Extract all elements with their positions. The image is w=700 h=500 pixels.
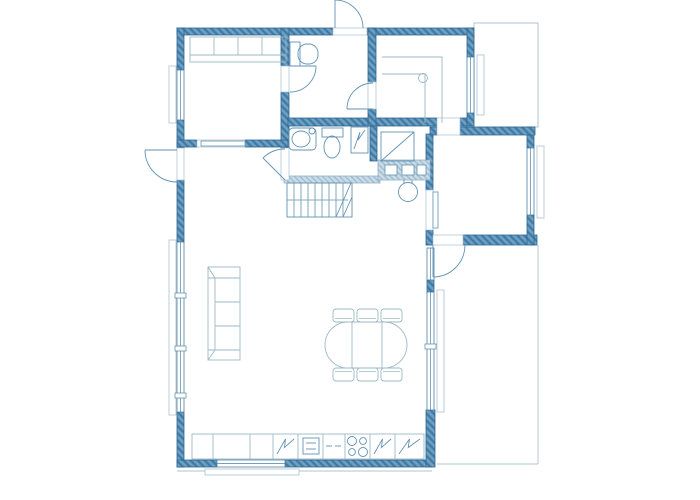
chair-4 (333, 368, 354, 381)
washbasin-faucet (309, 128, 315, 134)
mullion-dining (425, 344, 436, 349)
wall-west-4 (177, 412, 184, 467)
wall-hall-east-2 (467, 113, 474, 126)
sill-dining-window (437, 290, 444, 412)
sliding-door-bedroom (201, 141, 245, 146)
doorway-hall-eastroom (437, 118, 460, 135)
floor-plan-drawing (0, 0, 700, 500)
wall-south-east (285, 460, 432, 467)
washbasin-bowl (292, 131, 310, 147)
wall-hall-south-west (368, 118, 437, 126)
mullion-living-3 (175, 393, 186, 398)
wall-eastroom-north-east (460, 127, 535, 135)
chimney-flue-3 (417, 165, 426, 175)
dining-table (325, 322, 407, 368)
plan-root (145, 0, 544, 475)
appliance-freezer (399, 439, 420, 454)
opening-west-door (177, 148, 184, 180)
door-arc-entry (335, 0, 363, 28)
window-dining-east-2 (427, 292, 434, 410)
sofa-corner-2 (208, 350, 215, 360)
appliance-dishwasher (277, 439, 294, 454)
opening-bath-door (281, 148, 289, 180)
hall-counter-sink (419, 74, 428, 83)
toilet-bowl-bath (324, 136, 340, 158)
sill-east-room-window (537, 146, 544, 218)
chair-2 (357, 309, 378, 322)
window-kitchen-south (217, 460, 285, 467)
toilet-tank-entry (290, 42, 300, 66)
wall-eastroom-west-2 (426, 230, 433, 245)
hob-burner-1 (348, 437, 357, 446)
chair-1 (333, 309, 354, 322)
wall-bedroom-south-east (245, 140, 288, 147)
window-living-west (177, 242, 184, 412)
sofa (208, 267, 240, 360)
wall-bath-sauna-divider (370, 126, 377, 161)
window-eastroom-east (527, 148, 534, 215)
window-bedroom-west (177, 70, 184, 120)
hall-counter-inner (382, 74, 425, 123)
chair-6 (381, 368, 402, 381)
opening-bedroom-wc (281, 66, 289, 92)
sill-west-bedroom-window (169, 66, 176, 123)
wood-stove (399, 183, 418, 202)
wall-east-south (426, 410, 435, 467)
chair-5 (357, 368, 378, 381)
sill-east-hall-window (477, 55, 484, 115)
appliance-fridge (374, 439, 391, 454)
mullion-living-2 (175, 346, 186, 351)
hob-burner-3 (349, 449, 356, 456)
window-hall-east (467, 57, 474, 113)
wall-hall-south-east (460, 118, 467, 126)
oven (303, 438, 319, 454)
mullion-living-1 (175, 293, 186, 298)
shower-diagonal (381, 132, 414, 161)
chimney-flue-1 (385, 165, 397, 175)
opening-entry (333, 28, 367, 35)
sofa-corner-1 (208, 267, 215, 278)
wall-south-west (177, 460, 217, 467)
chimney-flue-2 (402, 165, 414, 175)
wall-top-west (177, 28, 333, 35)
door-arc-bedroom-wc (290, 66, 316, 92)
opening-wc-hall (368, 82, 376, 109)
opening-eastroom-west (426, 190, 433, 230)
hall-counter-outer (382, 57, 442, 123)
wall-wc-divider-2 (368, 109, 376, 126)
sill-west-living-window (169, 240, 176, 415)
stair-half-wall (284, 176, 380, 183)
door-arc-eastroom (433, 245, 465, 277)
wall-bedroom-south-west (177, 140, 197, 147)
wall-east-stub (427, 280, 434, 292)
hob-burner-4 (359, 448, 368, 457)
wall-west-3 (177, 180, 184, 242)
wall-eastroom-east-2 (527, 215, 534, 245)
opening-eastroom-south (433, 235, 463, 245)
floor-plan-canvas (0, 0, 700, 500)
water-heater (351, 127, 368, 153)
staircase (287, 183, 352, 217)
wall-hall-east-1 (467, 28, 474, 57)
toilet-bowl-entry (298, 44, 318, 64)
wall-bath-north (288, 118, 368, 126)
chair-3 (381, 309, 402, 322)
wall-dining-north (463, 235, 537, 245)
water-heater-symbol (354, 130, 365, 149)
wall-bedroom-divider-1 (281, 28, 289, 66)
hob-burner-2 (360, 438, 367, 445)
wall-west-1 (177, 28, 184, 70)
door-arc-west (145, 150, 177, 182)
sill-south-window (205, 469, 299, 475)
wall-wc-divider-1 (368, 28, 376, 82)
wall-top-east (367, 28, 473, 35)
sliding-door-eastroom (433, 192, 438, 228)
